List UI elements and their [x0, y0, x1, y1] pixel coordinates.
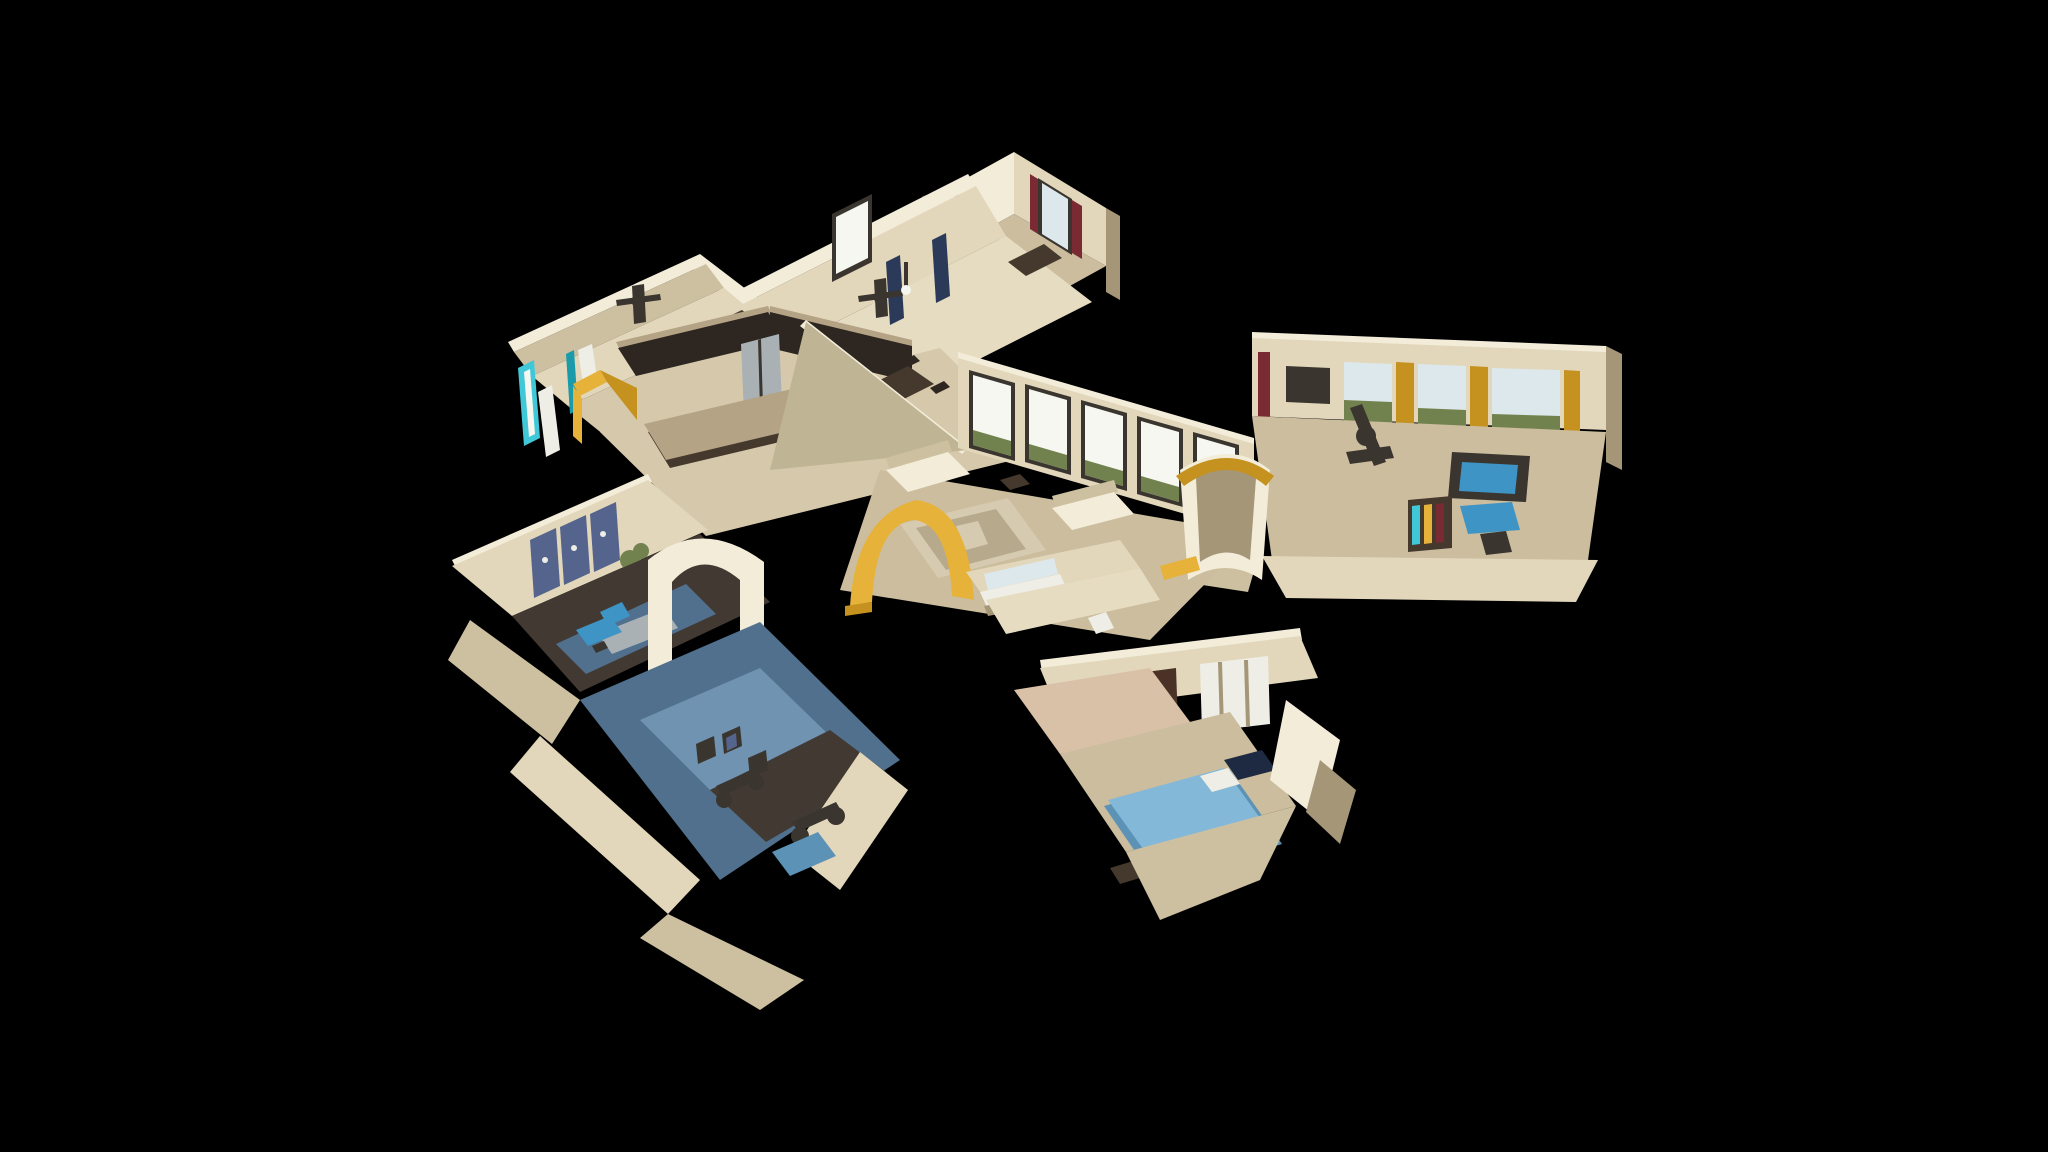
- fan-hub: [874, 292, 886, 304]
- room-master-bedroom: [1014, 628, 1356, 920]
- treadmill-deck-blue: [1459, 462, 1518, 494]
- tv-screen: [1286, 366, 1330, 404]
- curtain-maroon-2a: [1030, 174, 1038, 234]
- bike-2-wheel-b: [748, 774, 764, 790]
- chandelier: [901, 285, 911, 295]
- books-yellow: [1424, 504, 1432, 544]
- map-art-dot-2: [571, 545, 577, 551]
- dollhouse-viewport[interactable]: [0, 0, 2048, 1152]
- side-table: [1000, 474, 1030, 490]
- books-maroon: [1436, 503, 1444, 543]
- arch-gold-trim: [845, 602, 872, 616]
- room-office-gym: [448, 474, 908, 1010]
- map-art-dot-1: [542, 557, 548, 563]
- wall-outer-right: [1606, 346, 1622, 470]
- bike-2-wheel-a: [716, 792, 732, 808]
- desk-blue: [1460, 502, 1520, 534]
- turret-inner: [1196, 468, 1256, 562]
- books-teal: [1412, 505, 1420, 545]
- curtain-crimson: [1258, 352, 1270, 420]
- chandelier-stem: [904, 262, 908, 286]
- room-right-wing: [1252, 332, 1622, 602]
- elliptical-wheel: [1356, 426, 1376, 446]
- map-art-dot-3: [600, 531, 606, 537]
- dollhouse-3d-model[interactable]: [0, 0, 2048, 1152]
- wall-bottom-band: [1262, 556, 1598, 602]
- wall-outer-right: [1106, 208, 1120, 300]
- bike-1-wheel-b: [827, 807, 845, 825]
- gym-wall-tip: [640, 914, 804, 1010]
- fan-hub: [632, 296, 644, 308]
- plant-2: [633, 543, 649, 559]
- map-art-panel-3: [590, 502, 620, 572]
- curtain-maroon-2b: [1072, 200, 1082, 259]
